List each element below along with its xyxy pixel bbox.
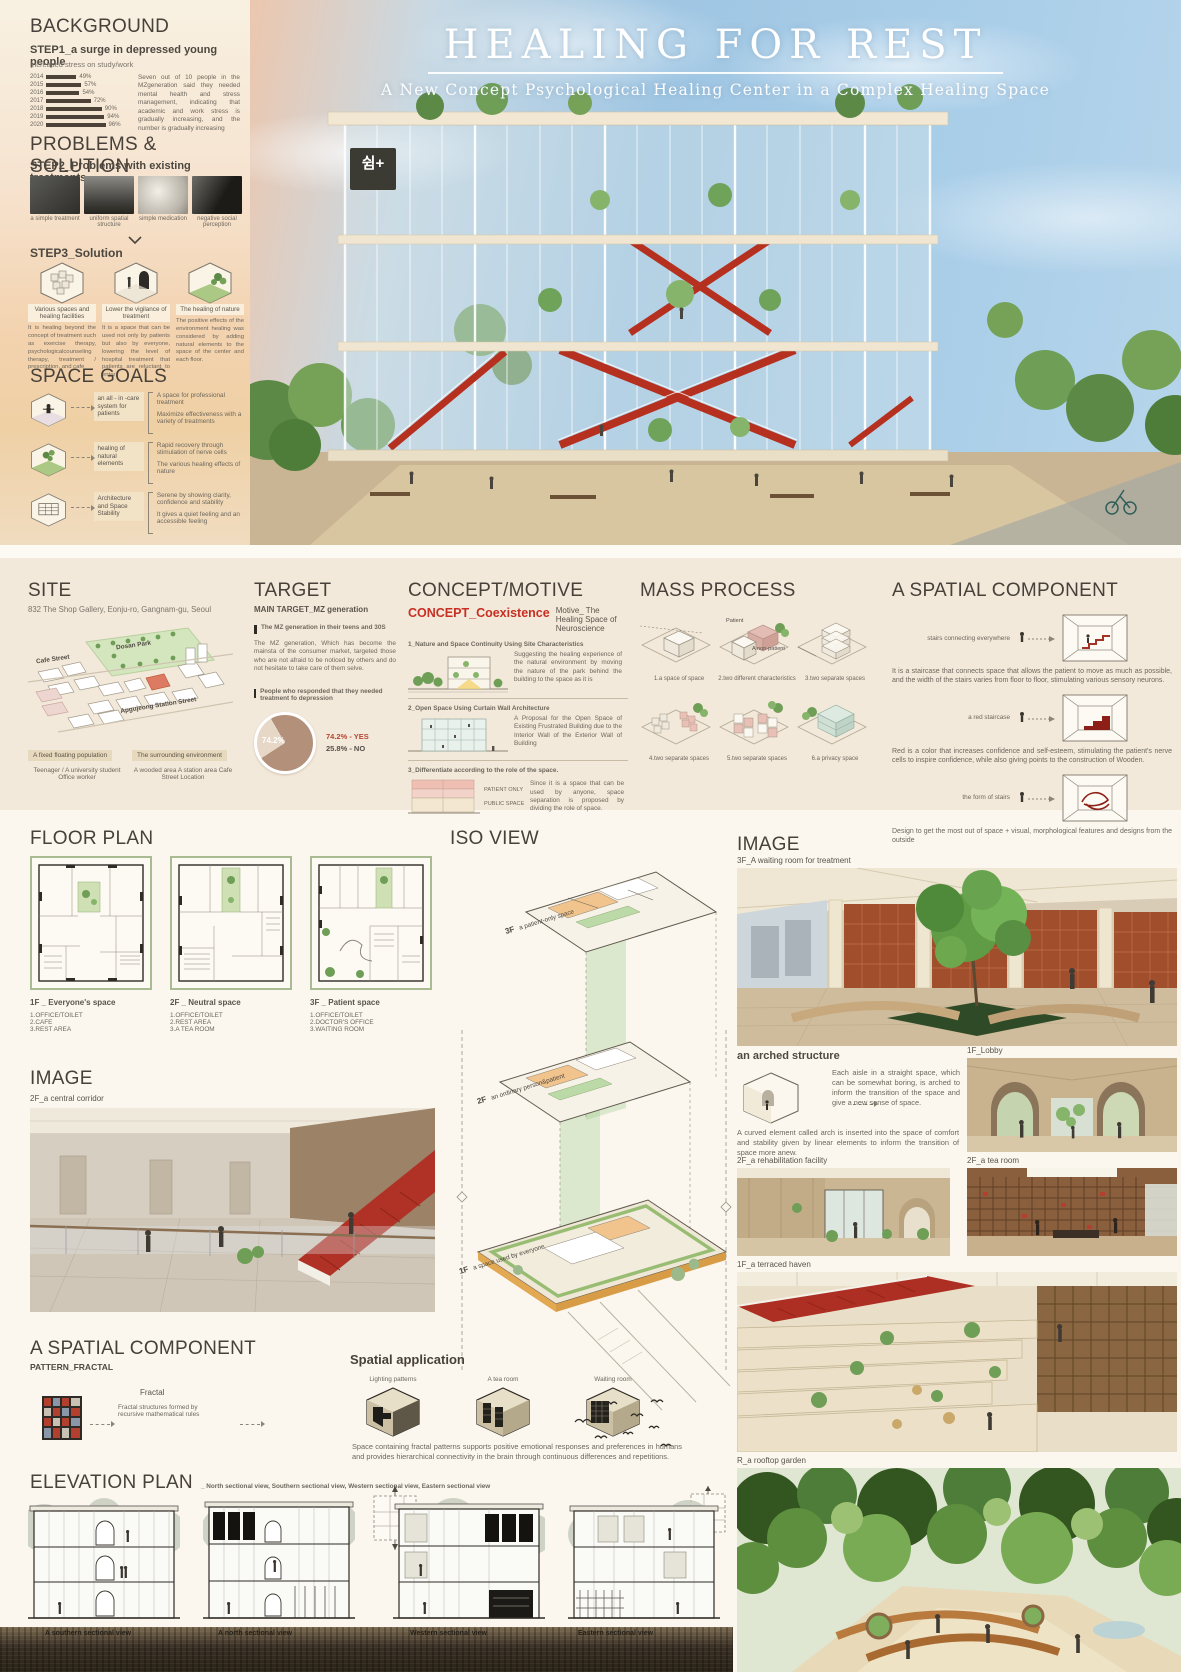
spatial-text: Red is a color that increases confidence…: [892, 747, 1172, 766]
fractal-pattern-icon: [42, 1396, 82, 1440]
plan-2f: [170, 856, 292, 990]
concept-item-text: Suggesting the healing experience of the…: [514, 651, 622, 693]
problem-photo-corridor: [84, 176, 134, 214]
arch-room-icon: [742, 1072, 800, 1124]
site-tags: A fixed floating population Teenager / A…: [28, 744, 236, 781]
site-tag: The surrounding environment: [132, 750, 227, 761]
trees-hexagon-icon: [30, 442, 67, 478]
plan-name: 2F _ Neutral space: [170, 998, 292, 1007]
plan-room: 3.WAITING ROOM: [310, 1026, 432, 1033]
image-right-heading: IMAGE: [737, 834, 800, 856]
corridor-caption: 2F_a central corridor: [30, 1094, 104, 1103]
birds-icon: [565, 1392, 675, 1462]
problem-caption: simple medication: [138, 216, 188, 222]
bar-row: 2014 49%: [30, 74, 134, 80]
spatial-heading: A SPATIAL COMPONENT: [892, 580, 1172, 602]
floor-plan-captions: 1F _ Everyone's space 1.OFFICE/TOILET 2.…: [30, 998, 432, 1033]
patient-label: Patient: [726, 618, 743, 624]
plan-room: 2.DOCTOR'S OFFICE: [310, 1019, 432, 1026]
chevron-down-icon: [128, 236, 142, 244]
site-tag: A fixed floating population: [28, 750, 112, 761]
goal-points: A space for professional treatment Maxim…: [157, 392, 242, 425]
target-heading: TARGET: [254, 580, 396, 602]
problem-item: negative social perception: [192, 176, 242, 228]
cubes-hexagon-icon: [39, 262, 85, 304]
depression-pie-block: 74.2% 74.2% - YES 25.8% - NO: [254, 712, 396, 774]
poster-title: HEALING FOR REST: [250, 22, 1181, 68]
site-tag-block: The surrounding environment A wooded are…: [132, 744, 234, 781]
space-goal-row: an all - in -care system for patients A …: [30, 392, 242, 434]
site-map: Dosan Park Cafe Street Apgujeong Station…: [28, 620, 233, 738]
elevation-west: [393, 1494, 545, 1628]
site-marker: [146, 674, 170, 690]
mass-diagram-6: [796, 696, 868, 752]
spatial-label: the form of stairs: [892, 794, 1010, 801]
pie-legend: 74.2% - YES 25.8% - NO: [326, 732, 369, 753]
mass-caption: 3.two separate spaces: [796, 676, 874, 682]
problem-caption: uniform spatial structure: [84, 216, 134, 228]
mass-diagram-4: [640, 696, 712, 752]
goal-point: A space for professional treatment: [157, 392, 242, 406]
plan-caption-block: 2F _ Neutral space 1.OFFICE/TOILET 2.RES…: [170, 998, 292, 1033]
tea-room-caption: 2F_a tea room: [967, 1156, 1019, 1165]
spatial-label: stairs connecting everywhere: [892, 635, 1010, 642]
concept-item-text: Since it is a space that can be used by …: [530, 780, 624, 814]
problem-photo-pills: [138, 176, 188, 214]
mass-step-4: 4.two separate spaces: [640, 696, 718, 762]
plan-room: 1.OFFICE/TOILET: [170, 1012, 292, 1019]
application-label: Lighting patterns: [352, 1376, 434, 1383]
rehab-caption: 2F_a rehabilitation facility: [737, 1156, 827, 1165]
site-tag-detail: A wooded area A station area Cafe Street…: [132, 767, 234, 781]
arch-text-2: A curved element called arch is inserted…: [737, 1128, 959, 1158]
goal-points: Rapid recovery through stimulation of ne…: [157, 442, 242, 475]
site-tag-detail: Teenager / A university student Office w…: [28, 767, 126, 781]
elevation-caption: Eastern sectional view: [578, 1630, 653, 1637]
plan-caption-block: 3F _ Patient space 1.OFFICE/TOILET 2.DOC…: [310, 998, 432, 1033]
dashed-arrow-icon: [71, 507, 90, 509]
concept-item-title: 1_Nature and Space Continuity Using Site…: [408, 641, 628, 648]
waiting-room-caption: 3F_A waiting room for treatment: [737, 856, 851, 865]
concept-item-title: 3_Differentiate according to the role of…: [408, 767, 628, 774]
problem-item: simple medication: [138, 176, 188, 228]
concept-heading: CONCEPT/MOTIVE: [408, 580, 628, 602]
spatial-row-2: a red staircase: [892, 694, 1172, 742]
problem-photo-perception: [192, 176, 242, 214]
legend-no: 25.8% - NO: [326, 744, 369, 753]
concept-labels: CONCEPT_Coexistence Motive_ The Healing …: [408, 606, 628, 633]
plan-name: 1F _ Everyone's space: [30, 998, 152, 1007]
target-paragraph: The MZ generation, Which has become the …: [254, 640, 396, 674]
solution-item: Various spaces and healing facilities It…: [28, 262, 96, 380]
elevation-heading: ELEVATION PLAN: [30, 1472, 193, 1494]
image-left-heading: IMAGE: [30, 1068, 93, 1090]
bar-year: 2014: [30, 74, 43, 80]
bracket: [148, 392, 153, 434]
lobby-render: [967, 1058, 1177, 1152]
corridor-render: [30, 1108, 435, 1312]
target-bullet2: People who responded that they needed tr…: [260, 688, 396, 702]
mass-caption: 6.a privacy space: [796, 756, 874, 762]
goal-point: Rapid recovery through stimulation of ne…: [157, 442, 242, 456]
rooftop-garden-render: [737, 1468, 1181, 1672]
bullet-mark: [254, 689, 256, 698]
mass-diagram-5: [718, 696, 790, 752]
spatial-component-section: A SPATIAL COMPONENT stairs connecting ev…: [892, 580, 1172, 846]
divider-strip: [0, 545, 1181, 558]
nature-hexagon-icon: [187, 262, 233, 304]
bar-value: 90%: [105, 106, 117, 112]
pie-chart: 74.2%: [254, 712, 316, 774]
goal-point: The various healing effects of nature: [157, 461, 242, 475]
mass-process-section: MASS PROCESS 1.a space of space: [640, 580, 878, 762]
mass-step-5: 5.two separate spaces: [718, 696, 796, 762]
non-patient-label: A non-patient: [752, 646, 785, 652]
bar-year: 2020: [30, 122, 43, 128]
plan-3f: [310, 856, 432, 990]
mass-step-3: 3.two separate spaces: [796, 616, 874, 682]
bar: [46, 115, 104, 119]
lobby-caption: 1F_Lobby: [967, 1046, 1003, 1055]
spatial-row-3: the form of stairs: [892, 774, 1172, 822]
bar: [46, 99, 91, 103]
plan-room: 1.OFFICE/TOILET: [310, 1012, 432, 1019]
red-staircase-diagram: [1062, 694, 1128, 742]
bar-row: 2018 90%: [30, 106, 134, 112]
mass-diagram-3: [796, 616, 868, 672]
plan-1f: [30, 856, 152, 990]
solution-text: The positive effects of the environment …: [176, 318, 244, 365]
site-address: 832 The Shop Gallery, Eonju-ro, Gangnam-…: [28, 605, 236, 614]
mass-caption: 5.two separate spaces: [718, 756, 796, 762]
bar-row: 2016 54%: [30, 90, 134, 96]
bar-value: 94%: [107, 114, 119, 120]
sidebar: BACKGROUND STEP1_a surge in depressed yo…: [0, 0, 250, 545]
rooftop-caption: R_a rooftop garden: [737, 1456, 806, 1465]
solution-title: The healing of nature: [176, 304, 244, 315]
door-hexagon-icon: [113, 262, 159, 304]
iso-view-diagram: 3Fa patient-only space 2Fan ordinary per…: [448, 850, 733, 1416]
role-labels: PATIENT ONLY PUBLIC SPACE: [484, 787, 526, 807]
plan-room: 1.OFFICE/TOILET: [30, 1012, 152, 1019]
step1-subtitle: Increased stress on study/work: [30, 60, 133, 69]
arch-text-1: Each aisle in a straight space, which ca…: [832, 1068, 960, 1108]
rehab-render: [737, 1168, 950, 1256]
solution-items: Various spaces and healing facilities It…: [28, 262, 244, 380]
target-bullet: The MZ generation in their teens and 30S: [254, 624, 396, 634]
bar: [46, 107, 102, 111]
bracket: [148, 492, 153, 534]
fractal-text: Fractal structures formed by recursive m…: [118, 1404, 210, 1418]
goal-point: Maximize effectiveness with a variety of…: [157, 411, 242, 425]
bar-value: 49%: [79, 74, 91, 80]
mass-step-6: 6.a privacy space: [796, 696, 874, 762]
mass-heading: MASS PROCESS: [640, 580, 878, 602]
concept-label: CONCEPT_Coexistence: [408, 606, 550, 620]
curtain-wall-diagram: [408, 715, 508, 755]
bar-year: 2018: [30, 106, 43, 112]
structure-hexagon-icon: [30, 492, 67, 528]
bar: [46, 91, 79, 95]
bar-row: 2017 72%: [30, 98, 134, 104]
problem-photo-treatment: [30, 176, 80, 214]
concept-section: CONCEPT/MOTIVE CONCEPT_Coexistence Motiv…: [408, 580, 628, 817]
plan-room: 2.REST AREA: [170, 1019, 292, 1026]
spatial-row-1: stairs connecting everywhere: [892, 614, 1172, 662]
walking-arrow-icon: [1016, 631, 1056, 645]
bar-year: 2016: [30, 90, 43, 96]
plan-room: 3.REST AREA: [30, 1026, 152, 1033]
mass-caption: 2.two different characteristics: [718, 676, 796, 682]
step3-title: STEP3_Solution: [30, 246, 123, 260]
background-paragraph: Seven out of 10 people in the MZgenerati…: [138, 74, 240, 133]
iso-heading: ISO VIEW: [450, 828, 539, 850]
solution-item: The healing of nature The positive effec…: [176, 262, 244, 380]
bracket: [148, 442, 153, 484]
mass-caption: 1.a space of space: [640, 676, 718, 682]
space-goals-heading: SPACE GOALS: [30, 366, 167, 388]
dashed-arrow-icon: [71, 457, 90, 459]
dashed-arrow-icon: [240, 1424, 260, 1426]
waiting-room-render: [737, 868, 1177, 1046]
bar-value: 96%: [109, 122, 121, 128]
space-goal-row: healing of natural elements Rapid recove…: [30, 442, 242, 484]
solution-title: Lower the vigilance of treatment: [102, 304, 170, 322]
goal-point: It gives a quiet feeling and an accessib…: [157, 511, 242, 525]
bar-year: 2019: [30, 114, 43, 120]
tea-room-render: [967, 1168, 1177, 1256]
mass-grid: 1.a space of space Patient A non-patient…: [640, 616, 878, 762]
arch-title: an arched structure: [737, 1050, 840, 1062]
goal-label: an all - in -care system for patients: [94, 392, 145, 421]
target-bullet1: The MZ generation in their teens and 30S: [261, 624, 386, 634]
solution-title: Various spaces and healing facilities: [28, 304, 96, 322]
bar-row: 2015 57%: [30, 82, 134, 88]
fractal-section: A SPATIAL COMPONENT PATTERN_FRACTAL: [30, 1338, 350, 1372]
bar-year: 2015: [30, 82, 43, 88]
goal-label: Architecture and Space Stability: [94, 492, 145, 521]
elevation-caption: A north sectional view: [218, 1630, 292, 1637]
motive-label: Motive_ The Healing Space of Neuroscienc…: [556, 606, 628, 633]
bar-row: 2020 96%: [30, 122, 134, 128]
care-hexagon-icon: [30, 392, 67, 428]
plan-room: 2.CAFE: [30, 1019, 152, 1026]
bar: [46, 123, 106, 127]
site-map-illustration: [28, 620, 233, 738]
walking-arrow-icon: [1016, 791, 1056, 805]
bar-value: 57%: [84, 82, 96, 88]
stairs-room-diagram: [1062, 614, 1128, 662]
spatial-label: a red staircase: [892, 714, 1010, 721]
background-heading: BACKGROUND: [30, 16, 169, 38]
bar-row: 2019 94%: [30, 114, 134, 120]
mass-diagram-1: [640, 616, 712, 672]
fractal-heading: A SPATIAL COMPONENT: [30, 1338, 350, 1360]
public-space-label: PUBLIC SPACE: [484, 801, 526, 807]
terraced-haven-render: [737, 1272, 1177, 1452]
plan-caption-block: 1F _ Everyone's space 1.OFFICE/TOILET 2.…: [30, 998, 152, 1033]
problem-item: a simple treatment: [30, 176, 80, 228]
dashed-arrow-icon: [90, 1424, 110, 1426]
lighting-pattern-cube-icon: [365, 1387, 421, 1437]
target-subheading: MAIN TARGET_MZ generation: [254, 605, 396, 614]
poster-root: BACKGROUND STEP1_a surge in depressed yo…: [0, 0, 1181, 1672]
bar-year: 2017: [30, 98, 43, 104]
spatial-text: Design to get the most out of space + vi…: [892, 827, 1172, 846]
problem-item: uniform spatial structure: [84, 176, 134, 228]
role-division-diagram: [408, 777, 480, 817]
bar: [46, 75, 76, 79]
application-item: Lighting patterns: [352, 1376, 434, 1437]
goal-point: Serene by showing clarity, confidence an…: [157, 492, 242, 506]
space-goal-row: Architecture and Space Stability Serene …: [30, 492, 242, 534]
bar-value: 54%: [82, 90, 94, 96]
mass-step-1: 1.a space of space: [640, 616, 718, 682]
elevation-north: [203, 1494, 355, 1628]
problem-items: a simple treatment uniform spatial struc…: [30, 176, 242, 228]
concept-item-1: Suggesting the healing experience of the…: [408, 651, 628, 693]
floor-plan-heading: FLOOR PLAN: [30, 828, 153, 850]
target-bullet: People who responded that they needed tr…: [254, 688, 396, 702]
fractal-subheading: PATTERN_FRACTAL: [30, 1362, 350, 1372]
site-heading: SITE: [28, 580, 236, 602]
spatial-text: It is a staircase that connects space th…: [892, 667, 1172, 686]
site-section: SITE 832 The Shop Gallery, Eonju-ro, Gan…: [28, 580, 236, 781]
plan-room: 3.A TEA ROOM: [170, 1026, 292, 1033]
bullet-mark: [254, 625, 257, 634]
solution-item: Lower the vigilance of treatment It is a…: [102, 262, 170, 380]
elevation-east: [568, 1494, 720, 1628]
terrace-caption: 1F_a terraced haven: [737, 1260, 811, 1269]
elevation-south: [28, 1494, 180, 1628]
hero-title-block: HEALING FOR REST A New Concept Psycholog…: [250, 22, 1181, 99]
pie-center-label: 74.2%: [262, 736, 285, 745]
goal-points: Serene by showing clarity, confidence an…: [157, 492, 242, 525]
mass-caption: 4.two separate spaces: [640, 756, 718, 762]
plan-name: 3F _ Patient space: [310, 998, 432, 1007]
bar-value: 72%: [94, 98, 106, 104]
elevation-subheading: _ North sectional view, Southern section…: [201, 1483, 490, 1490]
target-section: TARGET MAIN TARGET_MZ generation The MZ …: [254, 580, 396, 774]
stress-bar-chart: 2014 49% 2015 57% 2016 54% 2017 72% 2018: [30, 74, 134, 128]
legend-yes: 74.2% - YES: [326, 732, 369, 741]
site-tag-block: A fixed floating population Teenager / A…: [28, 744, 126, 781]
concept-item-3: PATIENT ONLY PUBLIC SPACE Since it is a …: [408, 777, 628, 817]
dashed-arrow-icon: [71, 407, 90, 409]
mass-step-2: Patient A non-patient 2.two different ch…: [718, 616, 796, 682]
problem-caption: negative social perception: [192, 216, 242, 228]
concept-item-text: A Proposal for the Open Space of Existin…: [514, 715, 622, 755]
nature-continuity-diagram: [408, 651, 508, 693]
concept-item-title: 2_Open Space Using Curtain Wall Architec…: [408, 705, 628, 712]
mass-diagram-2: [718, 616, 790, 672]
problem-caption: a simple treatment: [30, 216, 80, 222]
title-rule: [428, 72, 1003, 74]
building-sign: 쉼+: [353, 152, 393, 173]
elevation-caption: A southern sectional view: [45, 1630, 131, 1637]
fractal-label: Fractal: [140, 1388, 164, 1397]
patient-only-label: PATIENT ONLY: [484, 787, 526, 793]
bar: [46, 83, 81, 87]
poster-subtitle: A New Concept Psychological Healing Cent…: [250, 81, 1181, 99]
goal-label: healing of natural elements: [94, 442, 145, 471]
walking-arrow-icon: [1016, 711, 1056, 725]
elevation-caption: Western sectional view: [410, 1630, 487, 1637]
stair-form-diagram: [1062, 774, 1128, 822]
hero: 쉼+ HEALING FOR REST A New Concept Psycho…: [250, 0, 1181, 545]
floor-plan-cards: [30, 856, 432, 990]
concept-item-2: A Proposal for the Open Space of Existin…: [408, 715, 628, 755]
